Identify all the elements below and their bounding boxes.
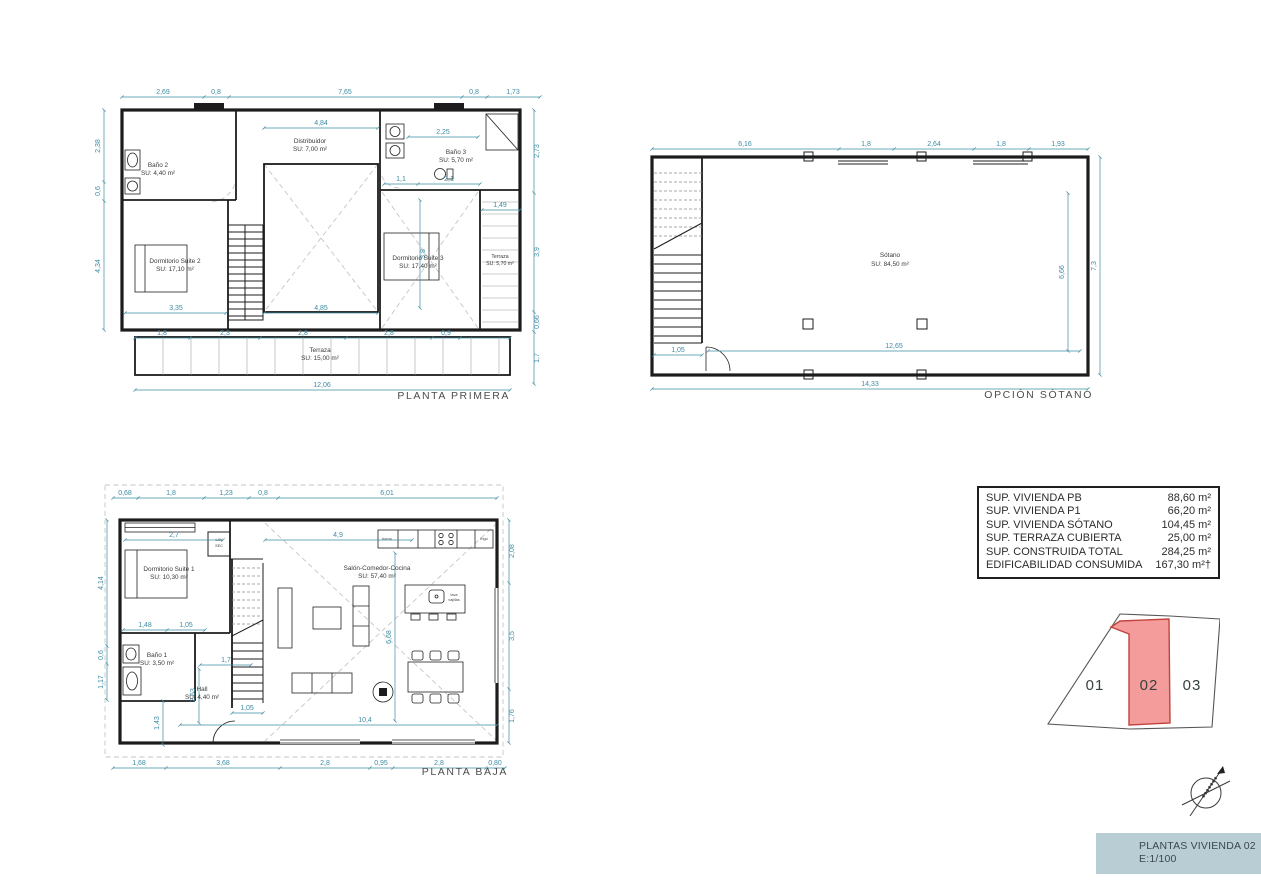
room-label: Baño 1: [147, 652, 168, 659]
dim-label: 0,68: [118, 490, 132, 497]
room-label: Salón-Comedor-Cocina: [344, 565, 411, 572]
table-row: SUP. TERRAZA CUBIERTA25,00 m²: [986, 532, 1211, 545]
dim-label: 2,08: [509, 544, 516, 558]
table-row: SUP. VIVIENDA P166,20 m²: [986, 505, 1211, 518]
dim-label: 1,49: [493, 202, 507, 209]
room-label: Dormitorio Suite 2: [149, 258, 201, 265]
room-labels: Dormitorio Suite 1 SU: 10,30 m² Baño 1 S…: [140, 537, 488, 701]
dim-label: 0,66: [534, 315, 541, 329]
room-area: SU: 17,10 m²: [156, 266, 194, 273]
plan-sotano: 6,16 1,8 2,64 1,8 1,93 14,33 12,65 6,66 …: [640, 133, 1110, 408]
dim-label: 3,68: [216, 760, 230, 767]
stairs: [213, 568, 263, 743]
dim-label: 0,9: [441, 330, 451, 337]
room-label: Terraza: [491, 254, 508, 260]
dim-label: 1,48: [138, 622, 152, 629]
dim-label: 2,8: [320, 760, 330, 767]
table-row-value: 66,20 m²: [1168, 505, 1211, 518]
table-row: SUP. CONSTRUIDA TOTAL284,25 m²: [986, 546, 1211, 559]
dim-label: 2,73: [534, 144, 541, 158]
appliance-label: vajillas: [448, 598, 459, 602]
lot-02-label: 02: [1140, 677, 1159, 694]
dim-label: 6,66: [1059, 265, 1066, 279]
dining-set: [408, 651, 463, 703]
dim-label: 0,6: [98, 650, 105, 660]
dimension-labels: 0,68 1,8 1,23 0,8 6,01 1,68 3,68 2,8 0,9…: [98, 490, 516, 767]
dim-label: 2,8: [384, 330, 394, 337]
plan-title-sotano: OPCIÓN SÓTANO: [950, 389, 1093, 401]
dim-label: 2,7: [169, 532, 179, 539]
room-label: Distribuidor: [294, 138, 327, 145]
room-area: SU: 5,70 m²: [486, 261, 514, 267]
dim-label: 7,65: [338, 89, 352, 96]
dim-label: 1,05: [671, 347, 685, 354]
dimension-labels: 2,69 0,8 7,65 0,8 1,73 2,38 0,6 4,34 2,7…: [95, 89, 541, 389]
plan-baja-drawing: 0,68 1,8 1,23 0,8 6,01 1,68 3,68 2,8 0,9…: [95, 473, 550, 788]
dim-label: 1,7: [221, 657, 231, 664]
table-row-value: 284,25 m²: [1161, 546, 1211, 559]
title-block: PLANTAS VIVIENDA 02 E:1/100: [1096, 833, 1261, 874]
room-area: SU: 5,70 m²: [439, 157, 473, 164]
dim-label: 1,05: [240, 705, 254, 712]
room-labels: Baño 2 SU: 4,40 m² Dormitorio Suite 2 SU…: [141, 138, 514, 362]
dim-label: 4,85: [314, 305, 328, 312]
plot-locator: 01 02 03: [1040, 606, 1220, 736]
dim-label: 1,43: [154, 716, 161, 730]
stairs: [228, 225, 263, 320]
dim-label: 1,05: [179, 622, 193, 629]
dim-label: 1,68: [132, 760, 146, 767]
dim-label: 0,8: [469, 89, 479, 96]
area-table: SUP. VIVIENDA PB88,60 m² SUP. VIVIENDA P…: [977, 486, 1220, 579]
room-labels: Sótano SU: 84,50 m²: [871, 252, 909, 268]
dim-label: 12,65: [885, 343, 903, 350]
dim-label: 7,3: [1091, 261, 1098, 271]
table-row-value: 104,45 m²: [1161, 519, 1211, 532]
dim-label: 1,93: [1051, 141, 1065, 148]
room-area: SU: 4,40 m²: [141, 170, 175, 177]
dim-label: 14,33: [861, 381, 879, 388]
walls: [652, 152, 1088, 379]
dim-label: 6,16: [738, 141, 752, 148]
dim-label: 1,1: [396, 176, 406, 183]
dim-label: 1,8: [166, 490, 176, 497]
north-arrow-icon: [1176, 760, 1236, 820]
plan-primera: 2,69 0,8 7,65 0,8 1,73 2,38 0,6 4,34 2,7…: [88, 80, 548, 410]
dim-label: 2,38: [95, 139, 102, 153]
dim-label: 4,84: [314, 120, 328, 127]
table-row-value: 25,00 m²: [1168, 532, 1211, 545]
room-area: SU: 57,40 m²: [358, 573, 396, 580]
table-row-label: EDIFICABILIDAD CONSUMIDA: [986, 559, 1142, 572]
plan-sotano-drawing: 6,16 1,8 2,64 1,8 1,93 14,33 12,65 6,66 …: [640, 133, 1110, 408]
room-label: Baño 3: [446, 149, 467, 156]
room-label: Dormitorio Suite 3: [392, 255, 444, 262]
dim-label: 10,4: [358, 717, 372, 724]
room-label: Baño 2: [148, 162, 169, 169]
dim-label: 1,76: [509, 709, 516, 723]
dim-label: 0,8: [211, 89, 221, 96]
dim-label: 4,9: [333, 532, 343, 539]
table-row-label: SUP. VIVIENDA P1: [986, 505, 1081, 518]
dim-label: 12,06: [313, 382, 331, 389]
plan-title-primera: PLANTA PRIMERA: [370, 390, 510, 402]
room-label: Terraza: [309, 347, 331, 354]
plan-baja: 0,68 1,8 1,23 0,8 6,01 1,68 3,68 2,8 0,9…: [95, 473, 550, 788]
dimension-lines: [652, 149, 1100, 389]
dim-label: 1,23: [219, 490, 233, 497]
dim-label: 1,17: [98, 675, 105, 689]
closet-label: LAV: [216, 538, 223, 542]
table-row-value: 88,60 m²: [1168, 492, 1211, 505]
walls: [120, 520, 499, 744]
room-area: SU: 15,00 m²: [301, 355, 339, 362]
living-room: [278, 586, 393, 702]
table-row-label: SUP. VIVIENDA PB: [986, 492, 1082, 505]
dim-label: 2,8: [298, 330, 308, 337]
appliance-label: frigo: [480, 537, 487, 541]
room-area: SU: 4,40 m²: [185, 694, 219, 701]
room-label: Dormitorio Suite 1: [143, 566, 195, 573]
ceiling-dashed-lines: [105, 485, 503, 757]
room-label: Sótano: [880, 252, 901, 259]
dim-label: 4,14: [98, 576, 105, 590]
columns: [803, 319, 927, 329]
dim-label: 3,35: [169, 305, 183, 312]
dim-label: 1,8: [157, 330, 167, 337]
room-area: SU: 7,00 m²: [293, 146, 327, 153]
dim-label: 3,5: [509, 631, 516, 641]
room-area: SU: 3,50 m²: [140, 660, 174, 667]
room-label: Hall: [196, 686, 207, 693]
table-row-label: SUP. VIVIENDA SÓTANO: [986, 519, 1113, 532]
room-area: SU: 17,40 m²: [399, 263, 437, 270]
dim-label: 2,1: [444, 176, 454, 183]
title-block-line2: E:1/100: [1139, 853, 1261, 866]
lot-03-label: 03: [1183, 677, 1202, 694]
appliance-label: lava: [451, 593, 459, 597]
plan-primera-drawing: 2,69 0,8 7,65 0,8 1,73 2,38 0,6 4,34 2,7…: [88, 80, 548, 410]
room-area: SU: 10,30 m²: [150, 574, 188, 581]
lot-01-label: 01: [1086, 677, 1105, 694]
dim-label: 2,25: [436, 129, 450, 136]
dim-label: 1,7: [534, 353, 541, 363]
dim-label: 3,9: [534, 247, 541, 257]
table-row: EDIFICABILIDAD CONSUMIDA167,30 m²†: [986, 559, 1211, 572]
dim-label: 6,01: [380, 490, 394, 497]
title-block-line1: PLANTAS VIVIENDA 02: [1139, 840, 1261, 853]
dim-label: 6,68: [386, 630, 393, 644]
table-row-label: SUP. TERRAZA CUBIERTA: [986, 532, 1122, 545]
bedroom-bath-fixtures: [123, 523, 195, 695]
dim-label: 1,8: [861, 141, 871, 148]
room-area: SU: 84,50 m²: [871, 261, 909, 268]
dim-label: 2,64: [927, 141, 941, 148]
dim-label: 1,8: [996, 141, 1006, 148]
dim-label: 4,34: [95, 259, 102, 273]
north-arrow-drawing: [1176, 760, 1236, 820]
dim-label: 2,69: [156, 89, 170, 96]
dim-label: 1,73: [506, 89, 520, 96]
stairs: [654, 157, 730, 371]
appliance-label: horno: [382, 537, 392, 541]
table-row: SUP. VIVIENDA SÓTANO104,45 m²: [986, 519, 1211, 532]
dim-label: 2,3: [220, 330, 230, 337]
dim-label: 0,8: [258, 490, 268, 497]
closet-label: SEC: [215, 544, 223, 548]
table-row-label: SUP. CONSTRUIDA TOTAL: [986, 546, 1123, 559]
plot-locator-drawing: 01 02 03: [1040, 606, 1220, 736]
table-row-value: 167,30 m²†: [1155, 559, 1211, 572]
table-row: SUP. VIVIENDA PB88,60 m²: [986, 492, 1211, 505]
plan-title-baja: PLANTA BAJA: [370, 766, 508, 778]
dim-label: 0,6: [95, 186, 102, 196]
